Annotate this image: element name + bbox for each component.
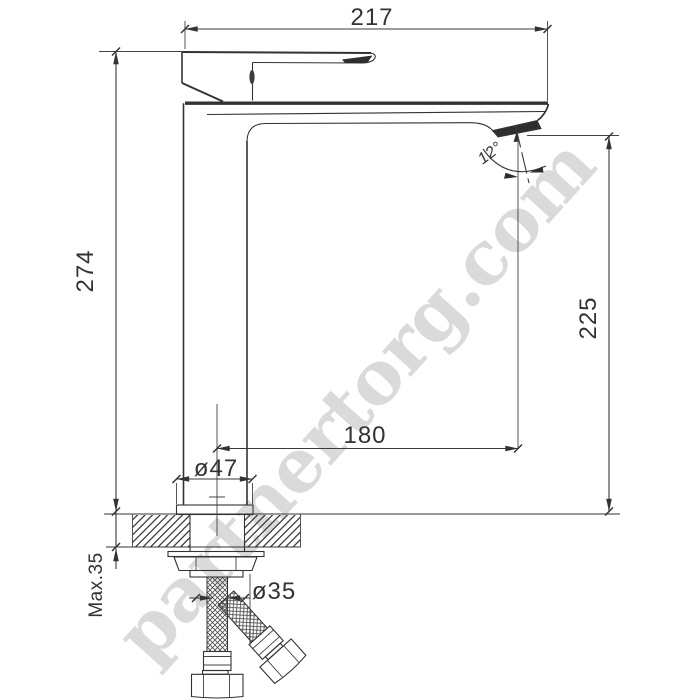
dim-label-overall-height: 274 bbox=[72, 249, 99, 292]
hose-braid bbox=[207, 577, 228, 652]
dim-label-overall-width: 217 bbox=[350, 4, 393, 31]
countertop-hatch-right bbox=[245, 515, 301, 547]
drawing-svg: partnertorg.com bbox=[0, 0, 700, 700]
dim-label-base-diameter: ø47 bbox=[194, 455, 238, 482]
countertop-hatch-left bbox=[133, 515, 190, 547]
dim-label-spout-reach: 180 bbox=[343, 422, 386, 449]
dim-label-hole-diameter: ø35 bbox=[252, 578, 296, 605]
dim-label-deck-thickness: Max.35 bbox=[86, 552, 107, 617]
dim-label-spout-height: 225 bbox=[575, 296, 602, 339]
technical-drawing: partnertorg.com bbox=[0, 0, 700, 700]
lever-pivot-detail bbox=[249, 70, 254, 84]
